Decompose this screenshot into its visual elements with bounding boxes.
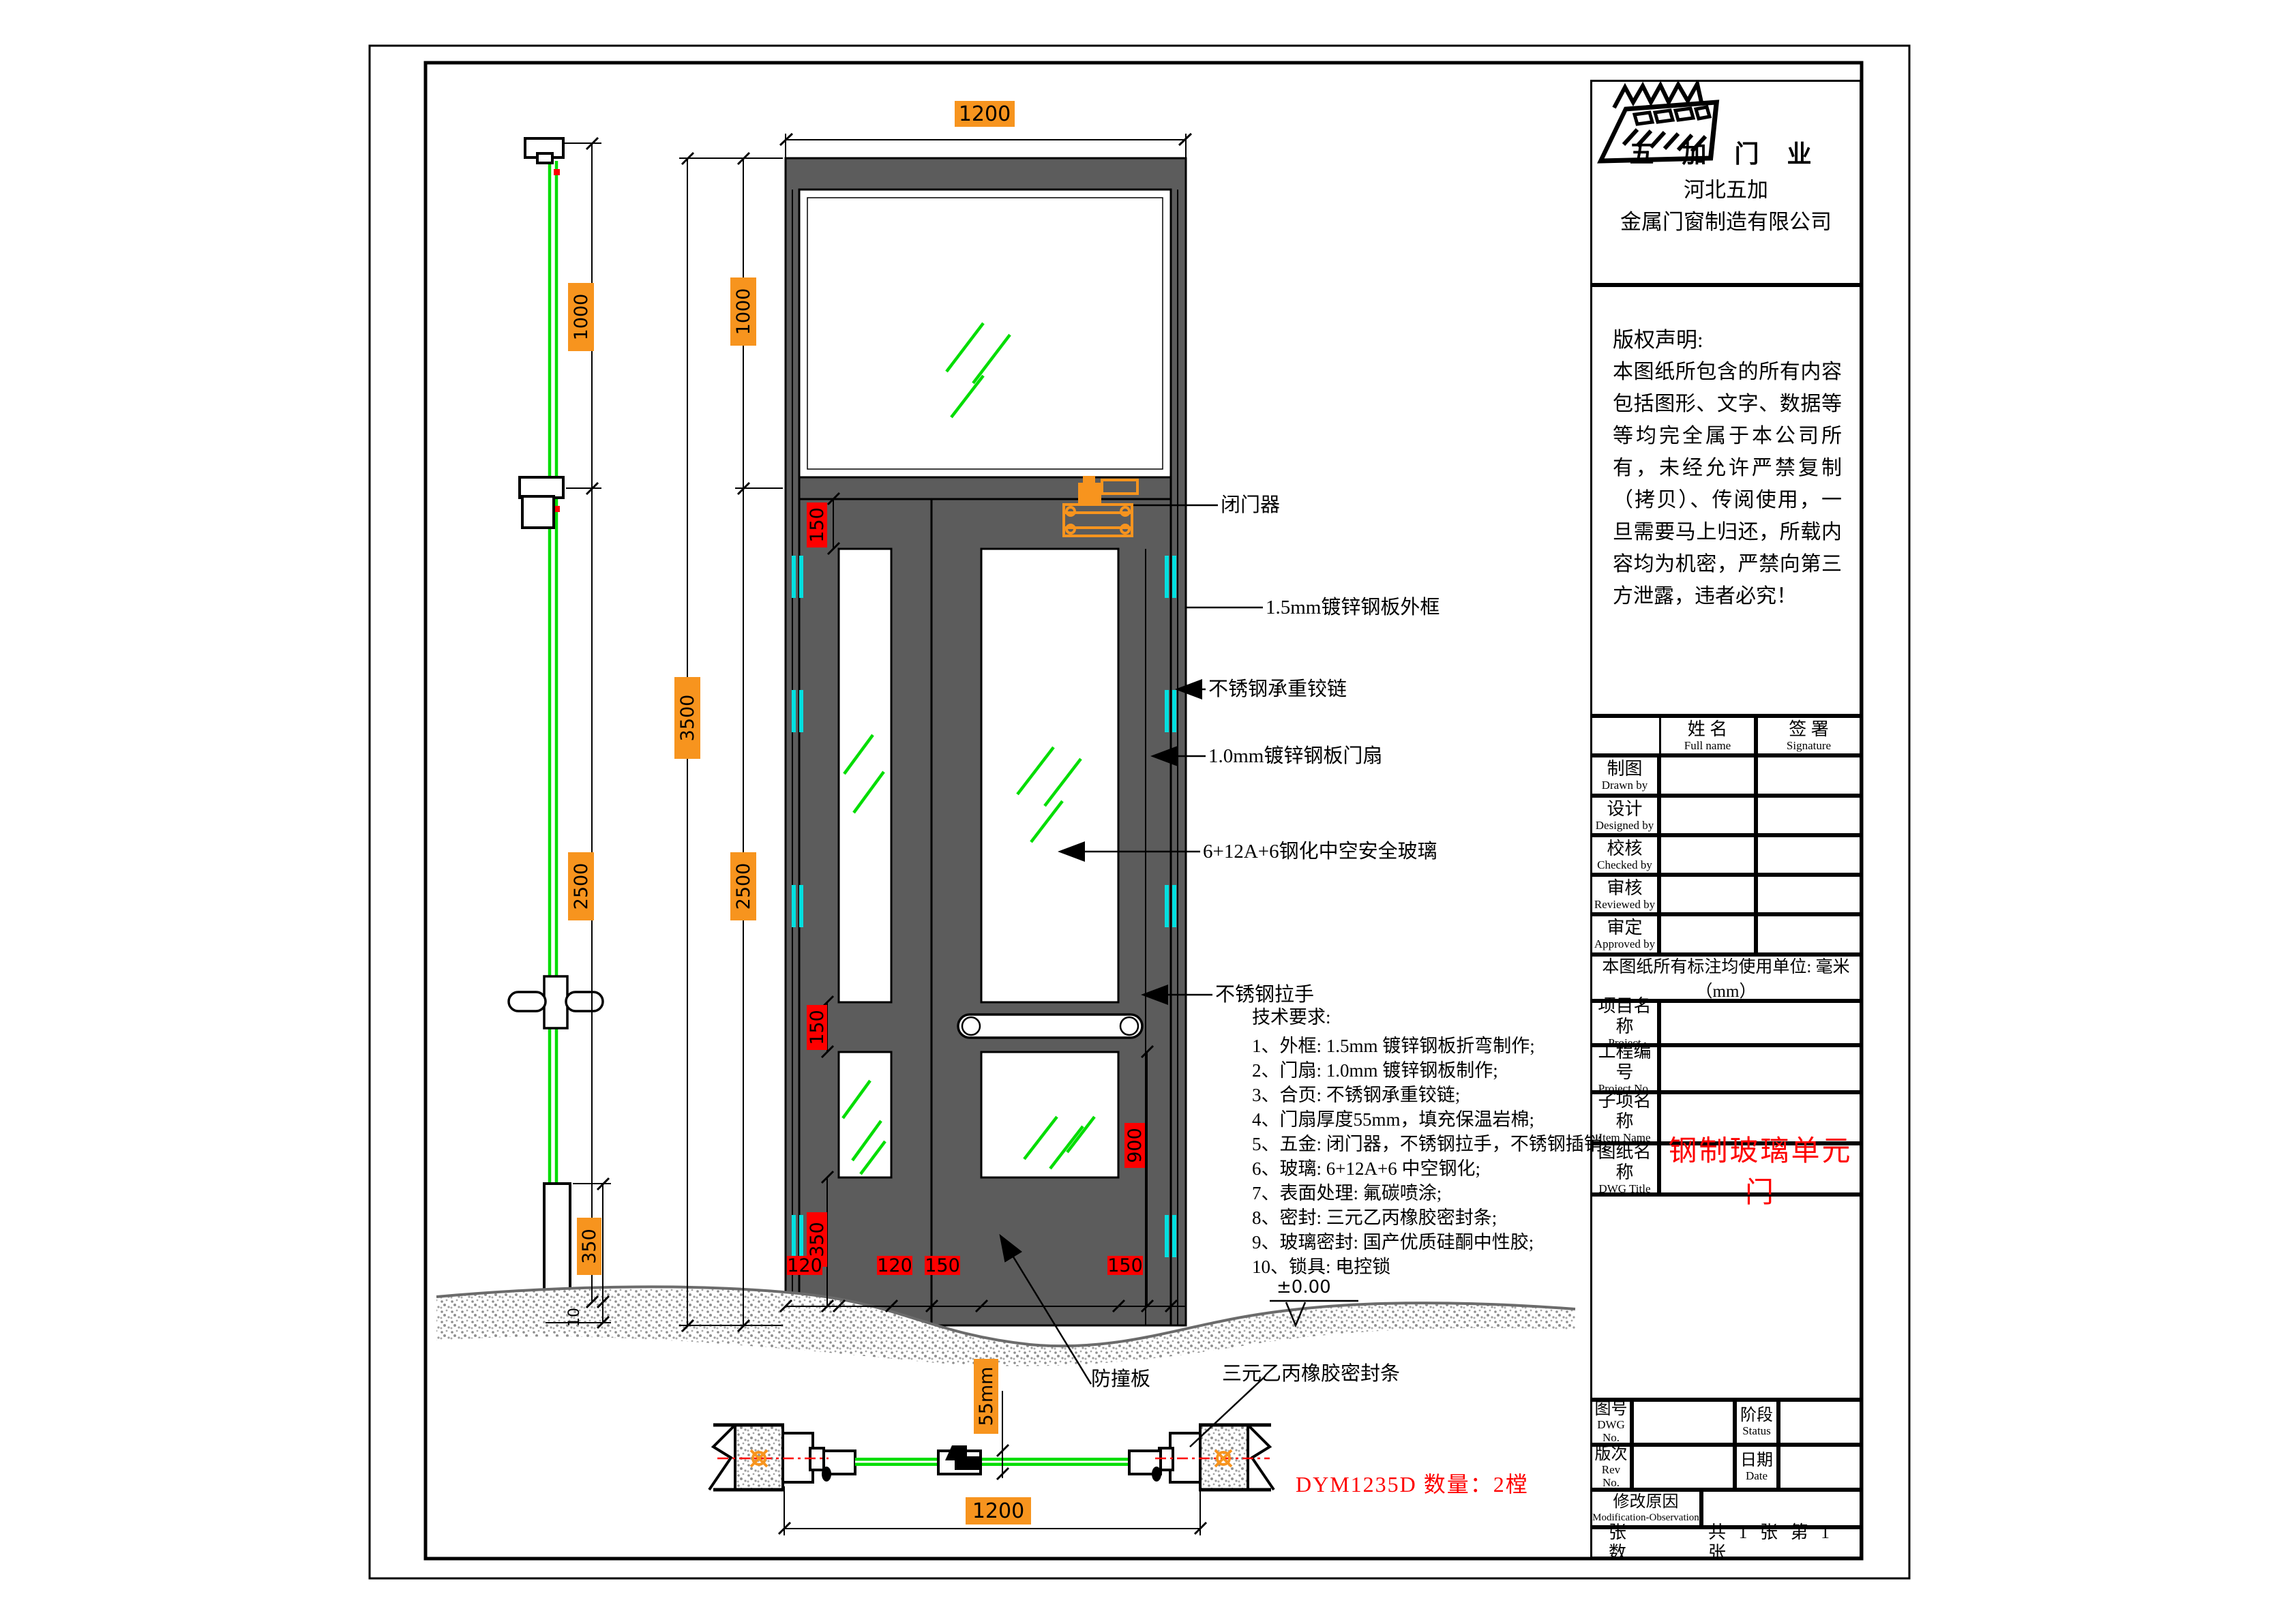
dim-rail-mid-150: 150 [807,1005,827,1050]
dim-sec-55mm: 55mm [974,1359,998,1434]
copyright-cell: 版权声明: 本图纸所包含的所有内容包括图形、文字、数据等等均完全属于本公司所有，… [1590,285,1862,716]
title-block: 五 加 门 业 河北五加 金属门窗制造有限公司 版权声明: 本图纸所包含的所有内… [1590,63,1862,1559]
copyright-body: 本图纸所包含的所有内容包括图形、文字、数据等等均完全属于本公司所有，未经允许严禁… [1613,356,1842,612]
tech-item-5: 5、五金: 闭门器，不锈钢拉手，不锈钢插销; [1252,1135,1607,1155]
modification-label: 修改原因Modification-Observation [1590,1490,1701,1527]
dwg-no-label: 图号DWG No. [1590,1400,1632,1445]
tech-item-9: 9、玻璃密封: 国产优质硅酮中性胶; [1252,1233,1534,1253]
model-quantity-text: DYM1235D 数量：2樘 [1296,1473,1529,1497]
label-outer-frame: 1.5mm镀锌钢板外框 [1266,597,1440,619]
tech-item-8: 8、密封: 三元乙丙橡胶密封条; [1252,1208,1497,1229]
units-note: 本图纸所有标注均使用单位: 毫米（mm） [1590,955,1862,1001]
dim-upper-1000: 1000 [730,277,756,346]
label-bump-plate: 防撞板 [1091,1369,1150,1391]
dim-side-10: 10 [565,1300,583,1334]
handle-side [509,976,603,1028]
dim-lower-2500: 2500 [730,852,756,920]
tech-requirements-title: 技术要求: [1252,1008,1331,1028]
tech-item-7: 7、表面处理: 氟碳喷涂; [1252,1184,1442,1204]
dim-w-120b: 120 [877,1256,912,1275]
info-item-name: 子项名称Item Name [1590,1092,1659,1143]
label-glass: 6+12A+6钢化中空安全玻璃 [1203,841,1437,863]
status-label: 阶段Status [1735,1400,1778,1445]
dwg-title-value: 钢制玻璃单元门 [1659,1143,1862,1195]
dim-rail-top-150: 150 [807,502,827,547]
sheet-count-row: 张 数 共 1 张 第 1 张 [1590,1527,1862,1559]
level-mark-text: ±0.00 [1277,1278,1331,1297]
drawing-sheet: 1200 3500 1000 2500 1000 2500 350 10 150… [0,0,2296,1622]
dim-side-2500: 2500 [568,852,594,920]
company-logo-icon [1592,82,1735,164]
sign-row-designed: 设计Designed by [1590,796,1659,835]
label-door-leaf: 1.0mm镀锌钢板门扇 [1208,746,1382,768]
tech-item-6: 6、玻璃: 6+12A+6 中空钢化; [1252,1159,1480,1180]
dim-w-150a: 150 [925,1256,960,1275]
handle-front [958,1015,1142,1038]
sign-row-approved: 审定Approved by [1590,914,1659,955]
dim-w-150b: 150 [1107,1256,1143,1275]
dim-sec-1200: 1200 [966,1497,1031,1525]
info-dwg-title: 图纸名称DWG Title [1590,1143,1659,1195]
company-name-line2: 金属门窗制造有限公司 [1620,205,1832,235]
dim-top-width: 1200 [955,101,1015,127]
rev-no-label: 版次Rev No. [1590,1445,1632,1490]
tech-item-3: 3、合页: 不锈钢承重铰链; [1252,1085,1460,1106]
tech-item-10: 10、锁具: 电控锁 [1252,1257,1390,1278]
label-door-closer: 闭门器 [1221,495,1280,517]
tech-item-1: 1、外框: 1.5mm 镀锌钢板折弯制作; [1252,1036,1535,1057]
sign-row-reviewed: 审核Reviewed by [1590,875,1659,914]
label-hinge: 不锈钢承重铰链 [1208,679,1347,701]
section-view [709,1425,1274,1490]
sign-row-checked: 校核Checked by [1590,835,1659,875]
tech-item-4: 4、门扇厚度55mm，填充保温岩棉; [1252,1110,1534,1130]
dim-stile-900: 900 [1124,1123,1145,1168]
label-handle: 不锈钢拉手 [1215,985,1314,1006]
dim-side-350: 350 [577,1218,601,1275]
info-project-no: 工程编号Project No. [1590,1045,1659,1092]
sign-row-drawn: 制图Drawn by [1590,755,1659,796]
copyright-title: 版权声明: [1613,322,1842,353]
company-name-line1: 河北五加 [1684,172,1768,203]
tech-item-2: 2、门扇: 1.0mm 镀锌钢板制作; [1252,1061,1498,1081]
sign-header-name: 姓 名Full name [1659,716,1756,755]
dim-total-height: 3500 [674,677,700,759]
info-project: 项目名称Project [1590,1001,1659,1045]
date-label: 日期Date [1735,1445,1778,1490]
label-seal-strip: 三元乙丙橡胶密封条 [1222,1364,1400,1385]
company-logo-cell: 五 加 门 业 河北五加 金属门窗制造有限公司 [1590,80,1862,285]
dim-side-1000: 1000 [568,283,594,351]
sign-header-signature: 签 署Signature [1756,716,1862,755]
dim-w-120a: 120 [787,1256,822,1275]
